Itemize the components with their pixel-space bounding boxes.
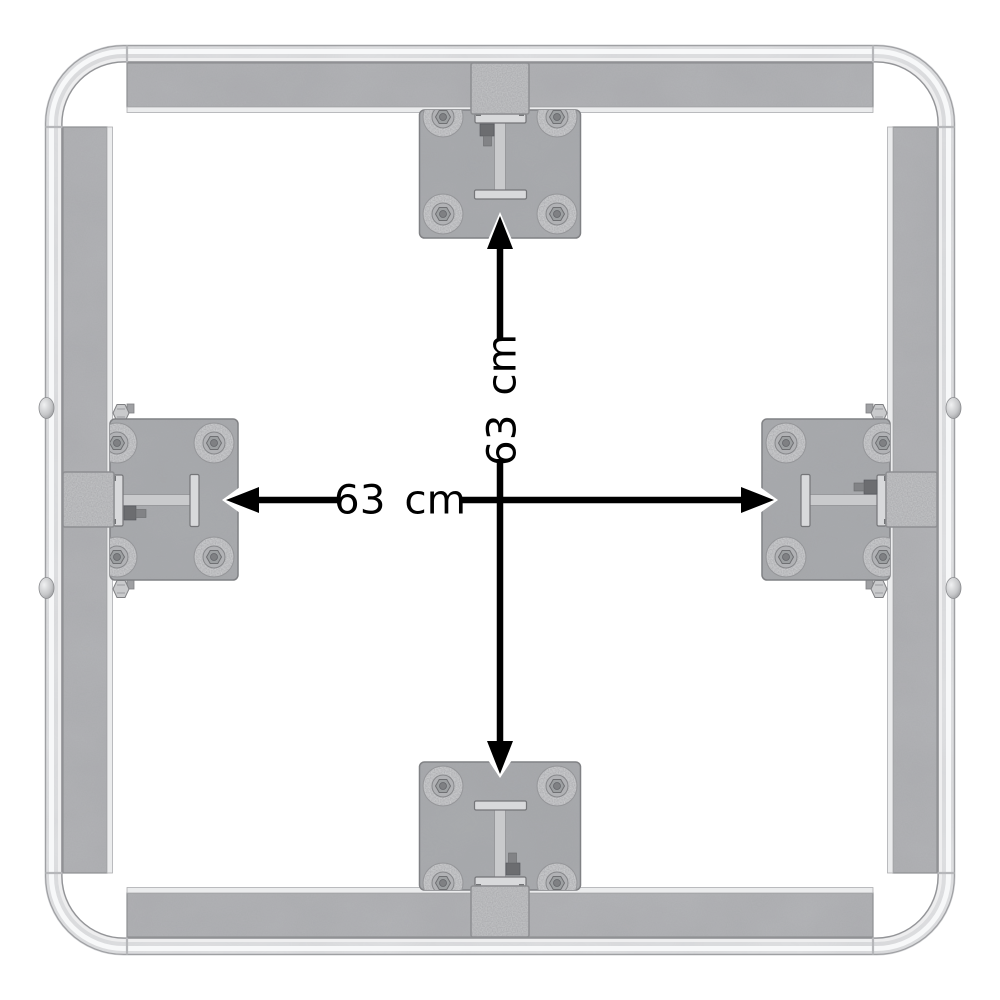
set-bolt — [506, 863, 520, 875]
dome-nut-icon — [39, 398, 54, 419]
dimension-label-vertical: 63 cm — [478, 334, 526, 466]
clamp-block-top — [471, 63, 529, 114]
mounting-plate-left — [97, 419, 238, 580]
mounting-plate-right — [762, 419, 903, 580]
clamp-block-left — [63, 472, 114, 527]
mounting-plate-bottom — [420, 762, 581, 903]
diagram-canvas: 63 cm 63 cm — [0, 0, 1000, 1000]
clamp-block-bottom — [471, 886, 529, 937]
set-bolt — [124, 506, 136, 520]
dome-nut-icon — [39, 578, 54, 599]
dome-nut-icon — [946, 578, 961, 599]
dome-nut-icon — [946, 398, 961, 419]
set-bolt — [864, 480, 877, 494]
frame-dimension-diagram: 63 cm 63 cm — [0, 0, 1000, 1000]
dimension-label-horizontal: 63 cm — [334, 476, 466, 524]
set-bolt — [480, 124, 494, 136]
clamp-block-right — [886, 472, 937, 527]
